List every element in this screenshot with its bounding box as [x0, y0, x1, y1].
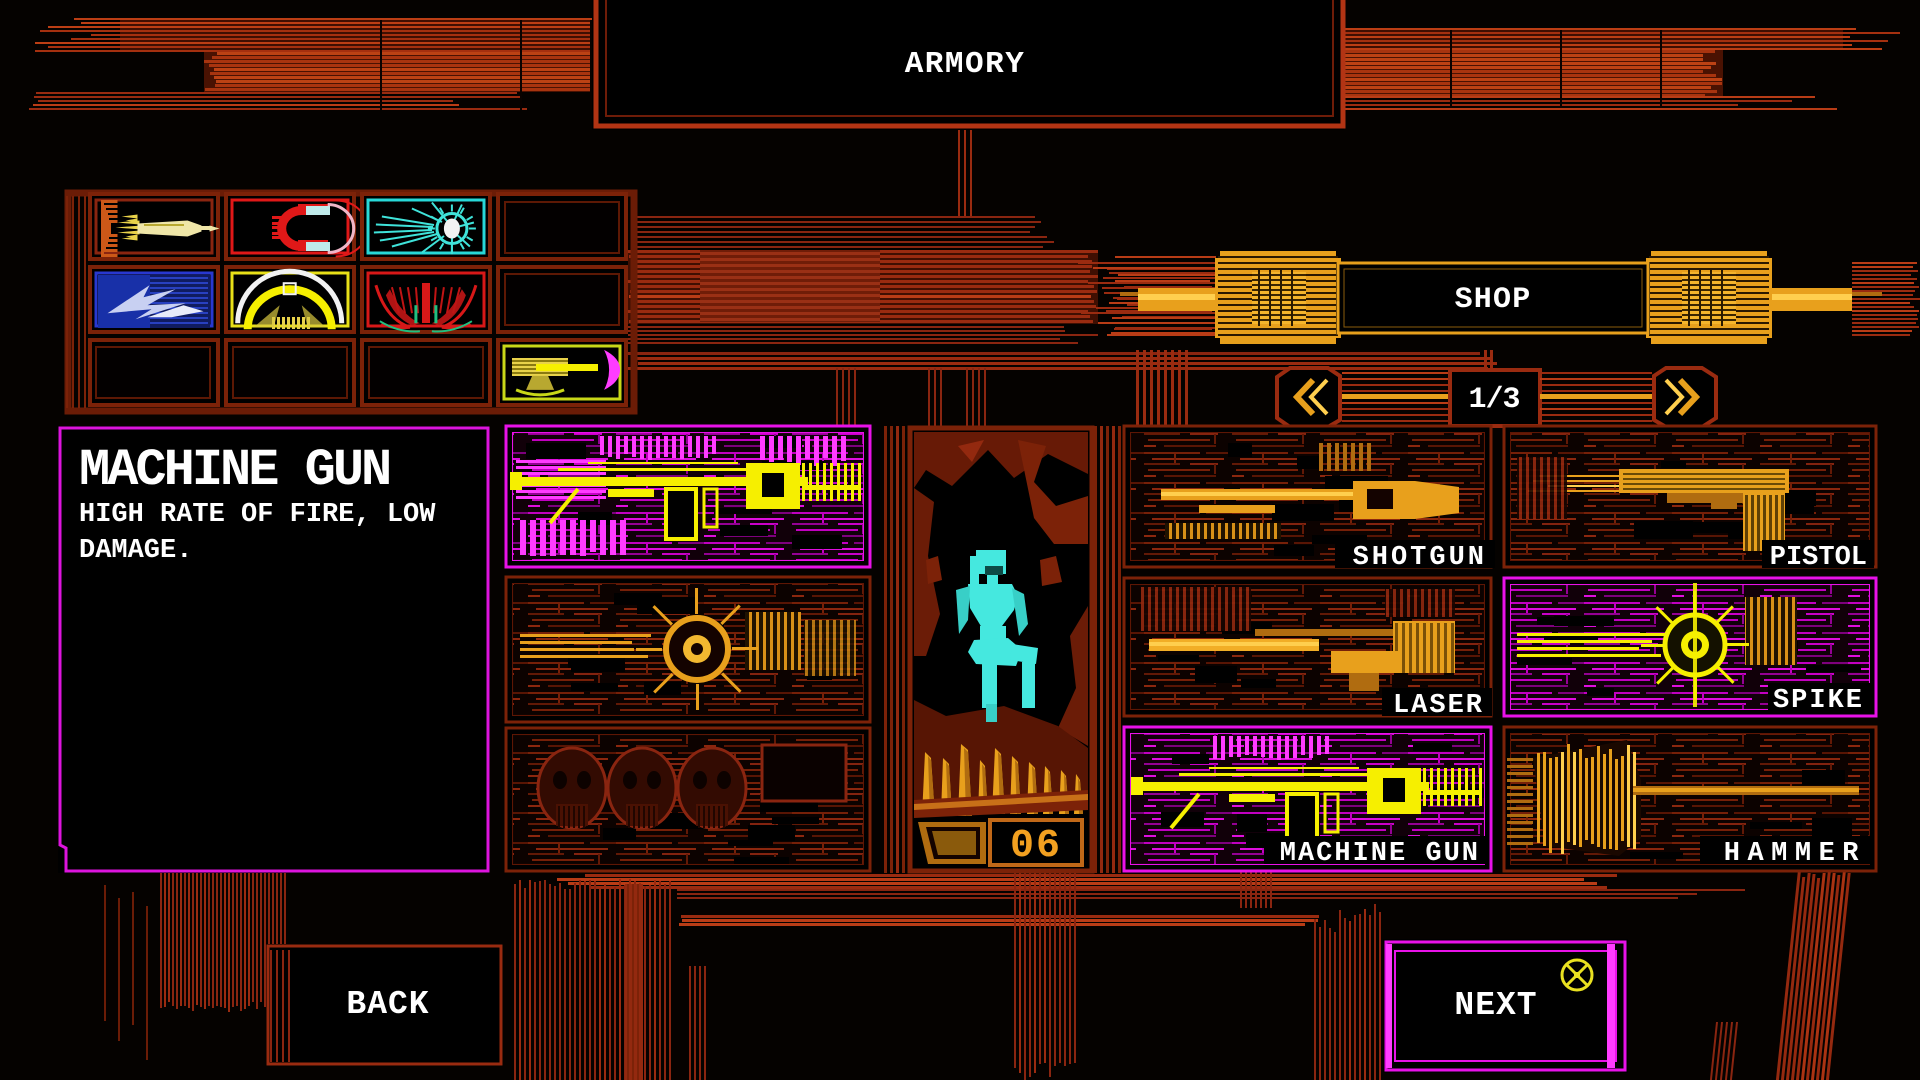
svg-text:HIGH RATE OF FIRE, LOW: HIGH RATE OF FIRE, LOW — [79, 500, 436, 530]
svg-text:SHOTGUN: SHOTGUN — [1353, 543, 1487, 573]
svg-text:NEXT: NEXT — [1454, 987, 1537, 1024]
svg-text:MACHINE GUN: MACHINE GUN — [1280, 839, 1480, 869]
svg-text:DAMAGE.: DAMAGE. — [79, 536, 192, 566]
svg-text:MACHINE GUN: MACHINE GUN — [79, 441, 389, 500]
svg-text:ARMORY: ARMORY — [905, 47, 1026, 82]
svg-text:HAMMER: HAMMER — [1724, 839, 1866, 869]
svg-text:06: 06 — [1010, 824, 1062, 869]
svg-text:PISTOL: PISTOL — [1770, 543, 1867, 573]
svg-text:LASER: LASER — [1393, 691, 1484, 721]
svg-text:SHOP: SHOP — [1455, 283, 1532, 317]
svg-text:SPIKE: SPIKE — [1773, 686, 1864, 716]
svg-text:BACK: BACK — [346, 986, 429, 1023]
svg-text:1/3: 1/3 — [1468, 383, 1519, 417]
